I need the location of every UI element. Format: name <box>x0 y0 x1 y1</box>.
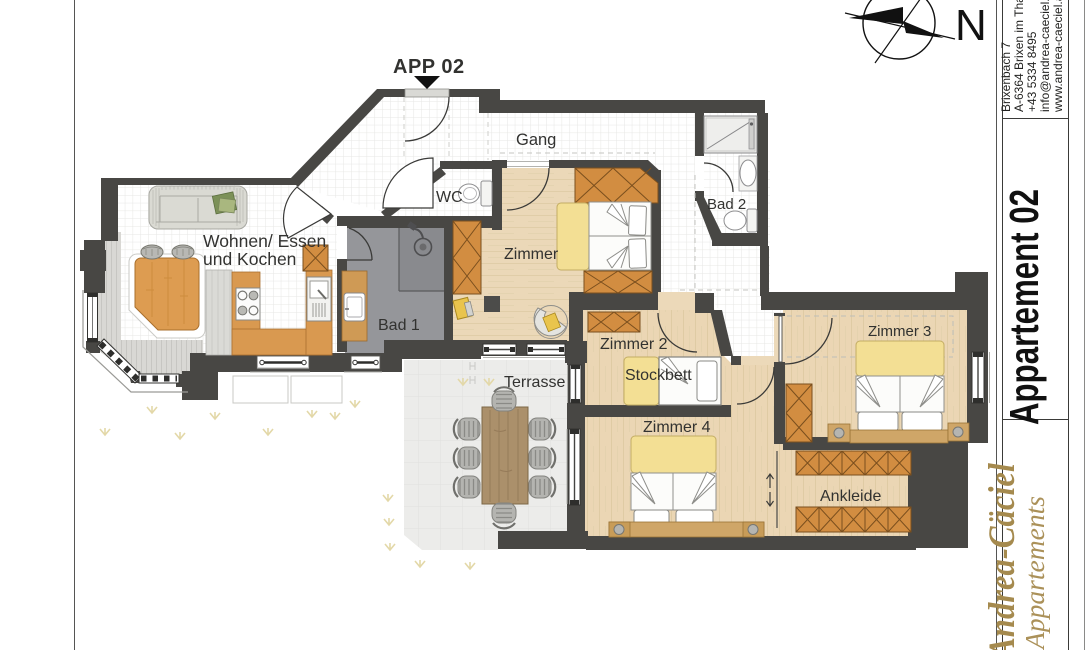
svg-text:Bad 1: Bad 1 <box>378 317 420 334</box>
svg-text:APP 02: APP 02 <box>393 56 465 78</box>
svg-text:WC: WC <box>436 189 463 206</box>
svg-text:und Kochen: und Kochen <box>203 249 296 269</box>
svg-text:www.andrea-caeciel.at: www.andrea-caeciel.at <box>1051 0 1065 113</box>
svg-text:Stockbett: Stockbett <box>625 367 692 384</box>
svg-text:info@andrea-caeciel.at: info@andrea-caeciel.at <box>1038 0 1052 112</box>
svg-text:Ankleide: Ankleide <box>820 488 881 505</box>
svg-text:Andrea-Cäciel: Andrea-Cäciel <box>982 462 1023 650</box>
svg-text:Zimmer 4: Zimmer 4 <box>643 419 711 436</box>
svg-text:Zimmer: Zimmer <box>504 246 559 263</box>
svg-text:Bad 2: Bad 2 <box>707 196 746 213</box>
svg-text:Zimmer 2: Zimmer 2 <box>600 336 668 353</box>
svg-text:Appartements: Appartements <box>1020 496 1050 650</box>
svg-text:+43 5334 8495: +43 5334 8495 <box>1025 31 1039 112</box>
svg-text:Terrasse: Terrasse <box>504 374 565 391</box>
svg-text:Appartement 02: Appartement 02 <box>1001 189 1047 425</box>
svg-text:Gang: Gang <box>516 131 556 149</box>
svg-text:A-6364 Brixen im Thale: A-6364 Brixen im Thale <box>1012 0 1026 112</box>
svg-text:Brixenbach 7: Brixenbach 7 <box>999 42 1013 112</box>
svg-text:Zimmer 3: Zimmer 3 <box>868 323 931 340</box>
svg-text:N: N <box>955 1 987 50</box>
svg-text:Wohnen/ Essen: Wohnen/ Essen <box>203 231 326 251</box>
